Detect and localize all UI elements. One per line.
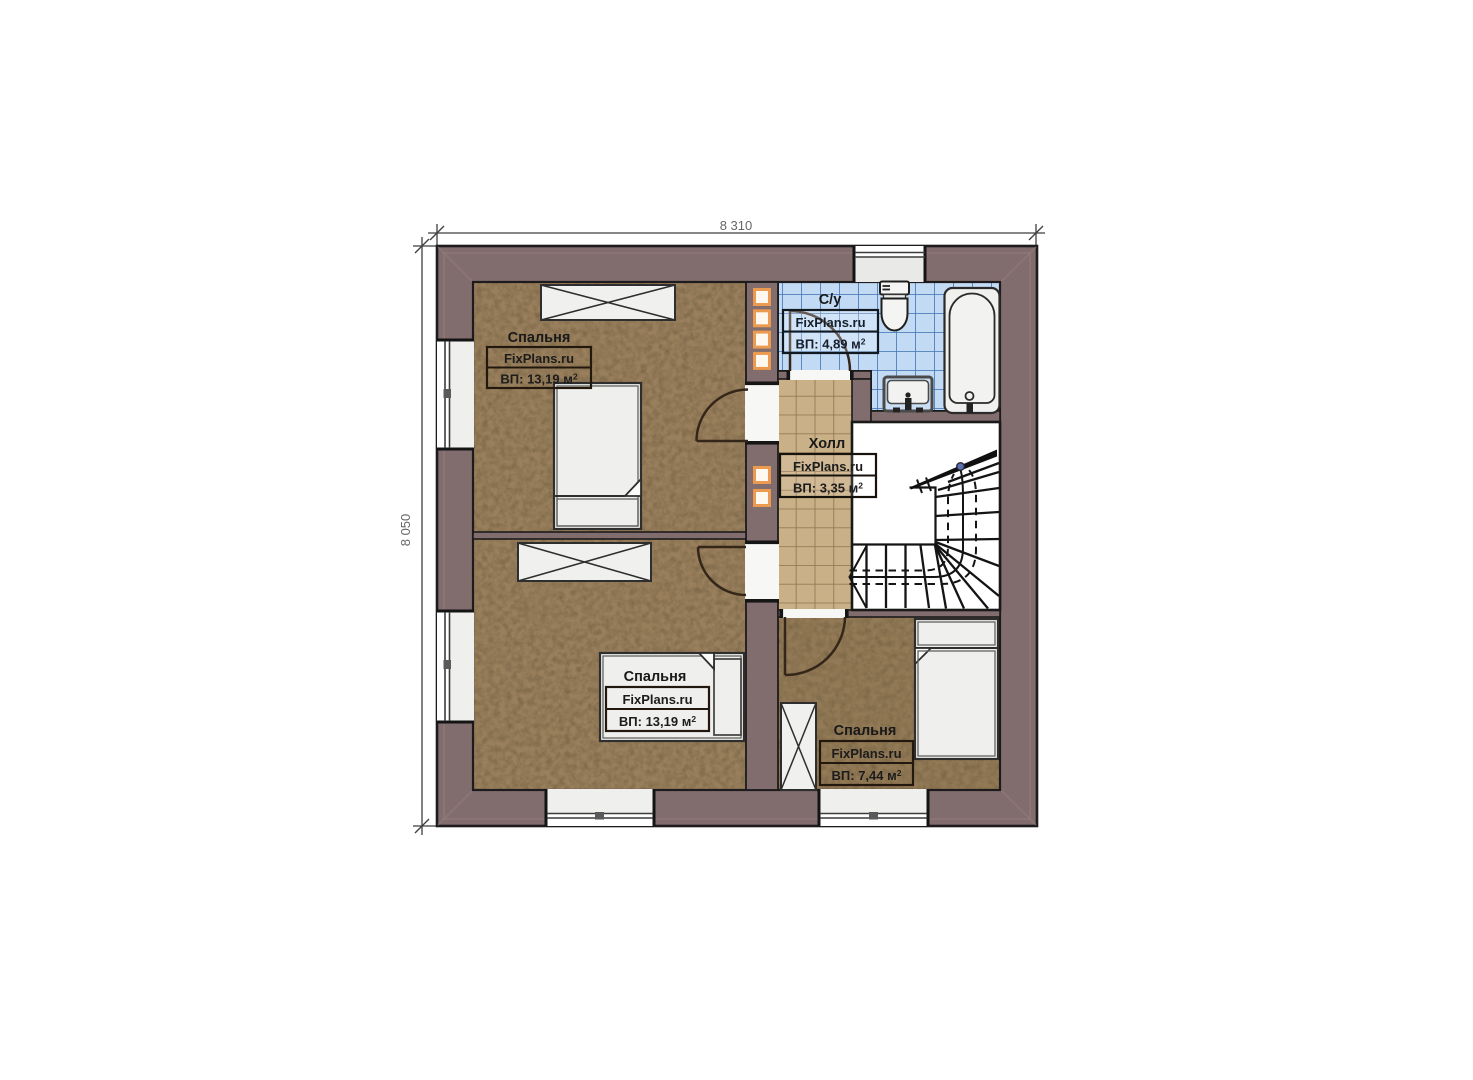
svg-text:FixPlans.ru: FixPlans.ru <box>795 315 865 330</box>
svg-text:8 310: 8 310 <box>720 218 753 233</box>
svg-text:FixPlans.ru: FixPlans.ru <box>622 692 692 707</box>
svg-text:ВП: 4,89 м2: ВП: 4,89 м2 <box>796 337 866 352</box>
svg-text:ВП: 7,44 м2: ВП: 7,44 м2 <box>832 768 902 783</box>
svg-text:FixPlans.ru: FixPlans.ru <box>504 351 574 366</box>
svg-text:8 050: 8 050 <box>398 514 413 547</box>
svg-text:Спальня: Спальня <box>624 669 687 685</box>
svg-text:Спальня: Спальня <box>834 723 897 739</box>
svg-text:ВП: 13,19 м2: ВП: 13,19 м2 <box>500 372 577 387</box>
svg-text:ВП: 13,19 м2: ВП: 13,19 м2 <box>619 714 696 729</box>
svg-text:Холл: Холл <box>809 436 845 452</box>
svg-text:С/у: С/у <box>819 292 842 308</box>
svg-text:Спальня: Спальня <box>508 330 571 346</box>
svg-text:FixPlans.ru: FixPlans.ru <box>793 459 863 474</box>
svg-text:ВП: 3,35 м2: ВП: 3,35 м2 <box>793 481 863 496</box>
svg-text:FixPlans.ru: FixPlans.ru <box>831 746 901 761</box>
